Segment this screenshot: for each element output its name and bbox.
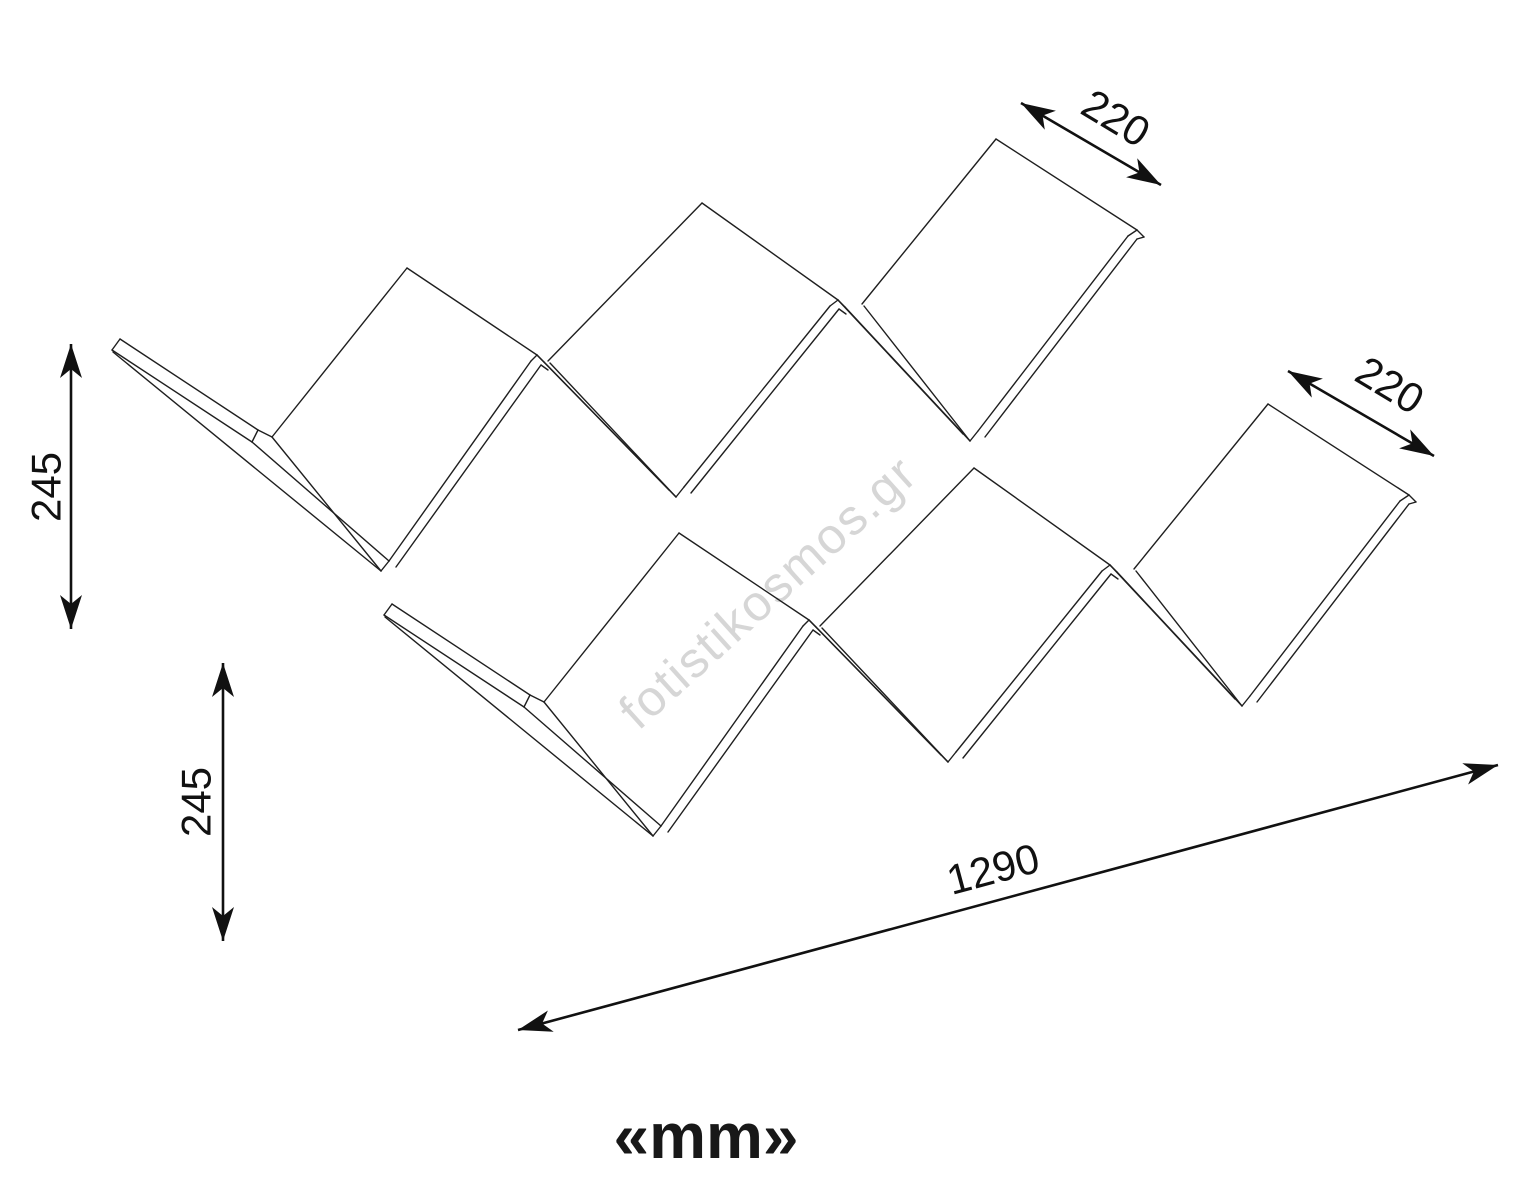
shelf-edge-line	[550, 363, 676, 497]
shelf-edge-line	[948, 752, 956, 762]
shelf-edge-line	[531, 355, 537, 361]
shelf-edge-line	[970, 431, 978, 441]
dimension-line	[518, 765, 1498, 1030]
dimension-label-height-upper: 245	[23, 452, 70, 522]
arrowhead-icon	[1288, 371, 1323, 398]
shelf-edge-line	[676, 487, 684, 497]
shelf-edge-line	[272, 268, 407, 437]
shelf-edge-line	[1268, 404, 1409, 495]
shelf-edge-line	[864, 306, 970, 441]
arrowhead-icon	[1126, 158, 1161, 185]
shelf-edge-line	[252, 442, 389, 561]
shelf-edge-line	[803, 620, 809, 626]
shelf-edge-line	[839, 309, 846, 314]
shelf-edge-line	[830, 300, 838, 306]
shelf-edge-line	[985, 239, 1137, 437]
shelf-edge-line	[978, 236, 1128, 431]
shelf-edge-line	[1400, 495, 1409, 501]
shelf-edge-line	[381, 561, 389, 571]
shelf-edge-line	[996, 139, 1137, 230]
shelf-edge-line	[1128, 230, 1137, 236]
shelf-edge-line	[112, 339, 120, 350]
dimension-depth-right: 220	[1288, 347, 1434, 456]
shelf-edge-line	[1136, 571, 1242, 706]
shelf-edge-line	[862, 139, 996, 304]
arrowhead-icon	[1399, 429, 1434, 456]
dimension-width-total: 1290	[518, 763, 1498, 1031]
shelf-edge-line	[530, 695, 544, 702]
shelf-edge-line	[974, 468, 1110, 565]
shelf-edge-line	[258, 430, 272, 437]
shelf-edge-line	[385, 617, 653, 836]
dimension-label-width-total: 1290	[942, 834, 1044, 904]
shelf-edge-line	[1137, 237, 1144, 239]
shelf-edge-line	[1242, 696, 1250, 706]
shelf-edge-line	[1257, 504, 1409, 702]
shelf-edge-line	[392, 604, 530, 695]
shelf-edge-line	[702, 203, 838, 300]
shelf-edge-line	[691, 309, 839, 493]
shelf-edge-line	[1111, 574, 1118, 579]
shelf-edge-line	[272, 437, 381, 571]
shelf-row-upper	[112, 139, 1144, 571]
shelf-edge-line	[112, 350, 252, 442]
shelf-edge-line	[389, 361, 531, 561]
arrowhead-icon	[1021, 103, 1056, 130]
shelf-edge-line	[963, 574, 1111, 758]
shelf-edge-line	[1102, 565, 1110, 571]
shelf-edge-line	[120, 339, 258, 430]
technical-drawing: fotistikosmos.gr 220 220 245 245 1290	[0, 0, 1540, 1180]
shelf-edge-line	[653, 826, 661, 836]
shelf-edge-line	[1137, 230, 1144, 237]
shelf-edge-line	[845, 307, 970, 441]
shelf-edge-line	[1250, 501, 1400, 696]
shelf-edge-line	[822, 628, 948, 762]
unit-label: «mm»	[614, 1100, 799, 1172]
shelf-edge-line	[396, 365, 541, 567]
shelf-edge-line	[384, 615, 524, 707]
shelf-edge-line	[252, 430, 258, 442]
shelf-edge-line	[113, 352, 381, 571]
shelf-edge-line	[1134, 404, 1268, 569]
shelf-edge-line	[1117, 572, 1242, 706]
dimension-height-upper: 245	[23, 344, 83, 629]
shelf-edge-line	[407, 268, 537, 355]
dimension-height-lower: 245	[173, 663, 235, 941]
shelf-edge-line	[524, 695, 530, 707]
shelf-edge-line	[384, 604, 392, 615]
shelf-edge-line	[1409, 495, 1416, 502]
dimension-label-height-lower: 245	[173, 767, 220, 837]
dimension-label-depth-top: 220	[1074, 80, 1158, 156]
shelf-edge-line	[548, 203, 702, 361]
shelf-edge-line	[1409, 502, 1416, 504]
shelf-edge-line	[684, 306, 830, 487]
shelf-edge-line	[956, 571, 1102, 752]
drawing-page: fotistikosmos.gr 220 220 245 245 1290	[0, 0, 1540, 1180]
